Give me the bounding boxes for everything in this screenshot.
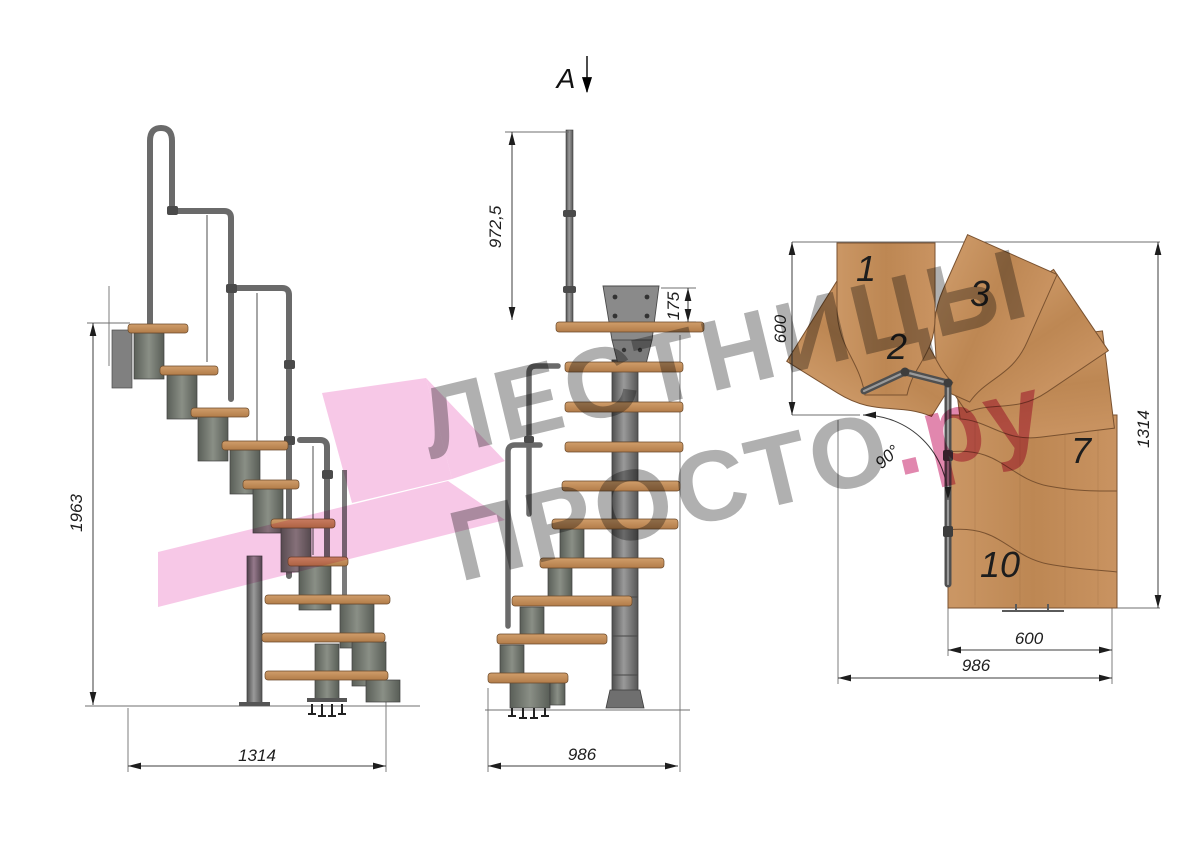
step-number-10: 10 (980, 544, 1020, 585)
step-number-1: 1 (856, 248, 876, 289)
dim-side-total-height: 1963 (67, 494, 86, 532)
dim-plan-upper-depth: 600 (771, 314, 790, 343)
side-view: 1963 1314 (67, 128, 505, 772)
front-anchor-bolts (508, 708, 549, 718)
section-mark-label: A (555, 63, 576, 94)
dim-front-bracket-height: 175 (664, 291, 683, 320)
dim-plan-total-depth: 986 (962, 656, 991, 675)
dim-plan-turn-angle: 90° (871, 441, 903, 472)
dim-front-total-width: 986 (568, 745, 597, 764)
plan-view: 600 1314 90° 600 986 1 2 3 7 10 (771, 235, 1160, 684)
drawing-canvas: 1963 1314 A 972,5 (0, 0, 1200, 849)
dim-plan-lower-width: 600 (1015, 629, 1044, 648)
step-number-3: 3 (970, 273, 990, 314)
dim-front-rail-height: 972,5 (486, 205, 505, 248)
step-number-7: 7 (1071, 430, 1093, 471)
step-number-2: 2 (886, 326, 907, 367)
front-rail-post (566, 130, 573, 326)
plan-lower-flight (948, 415, 1117, 608)
dim-plan-total-length: 1314 (1134, 410, 1153, 448)
dim-side-total-run: 1314 (238, 746, 276, 765)
technical-drawing: 1963 1314 A 972,5 (0, 0, 1200, 849)
front-view: A 972,5 175 (485, 56, 704, 772)
